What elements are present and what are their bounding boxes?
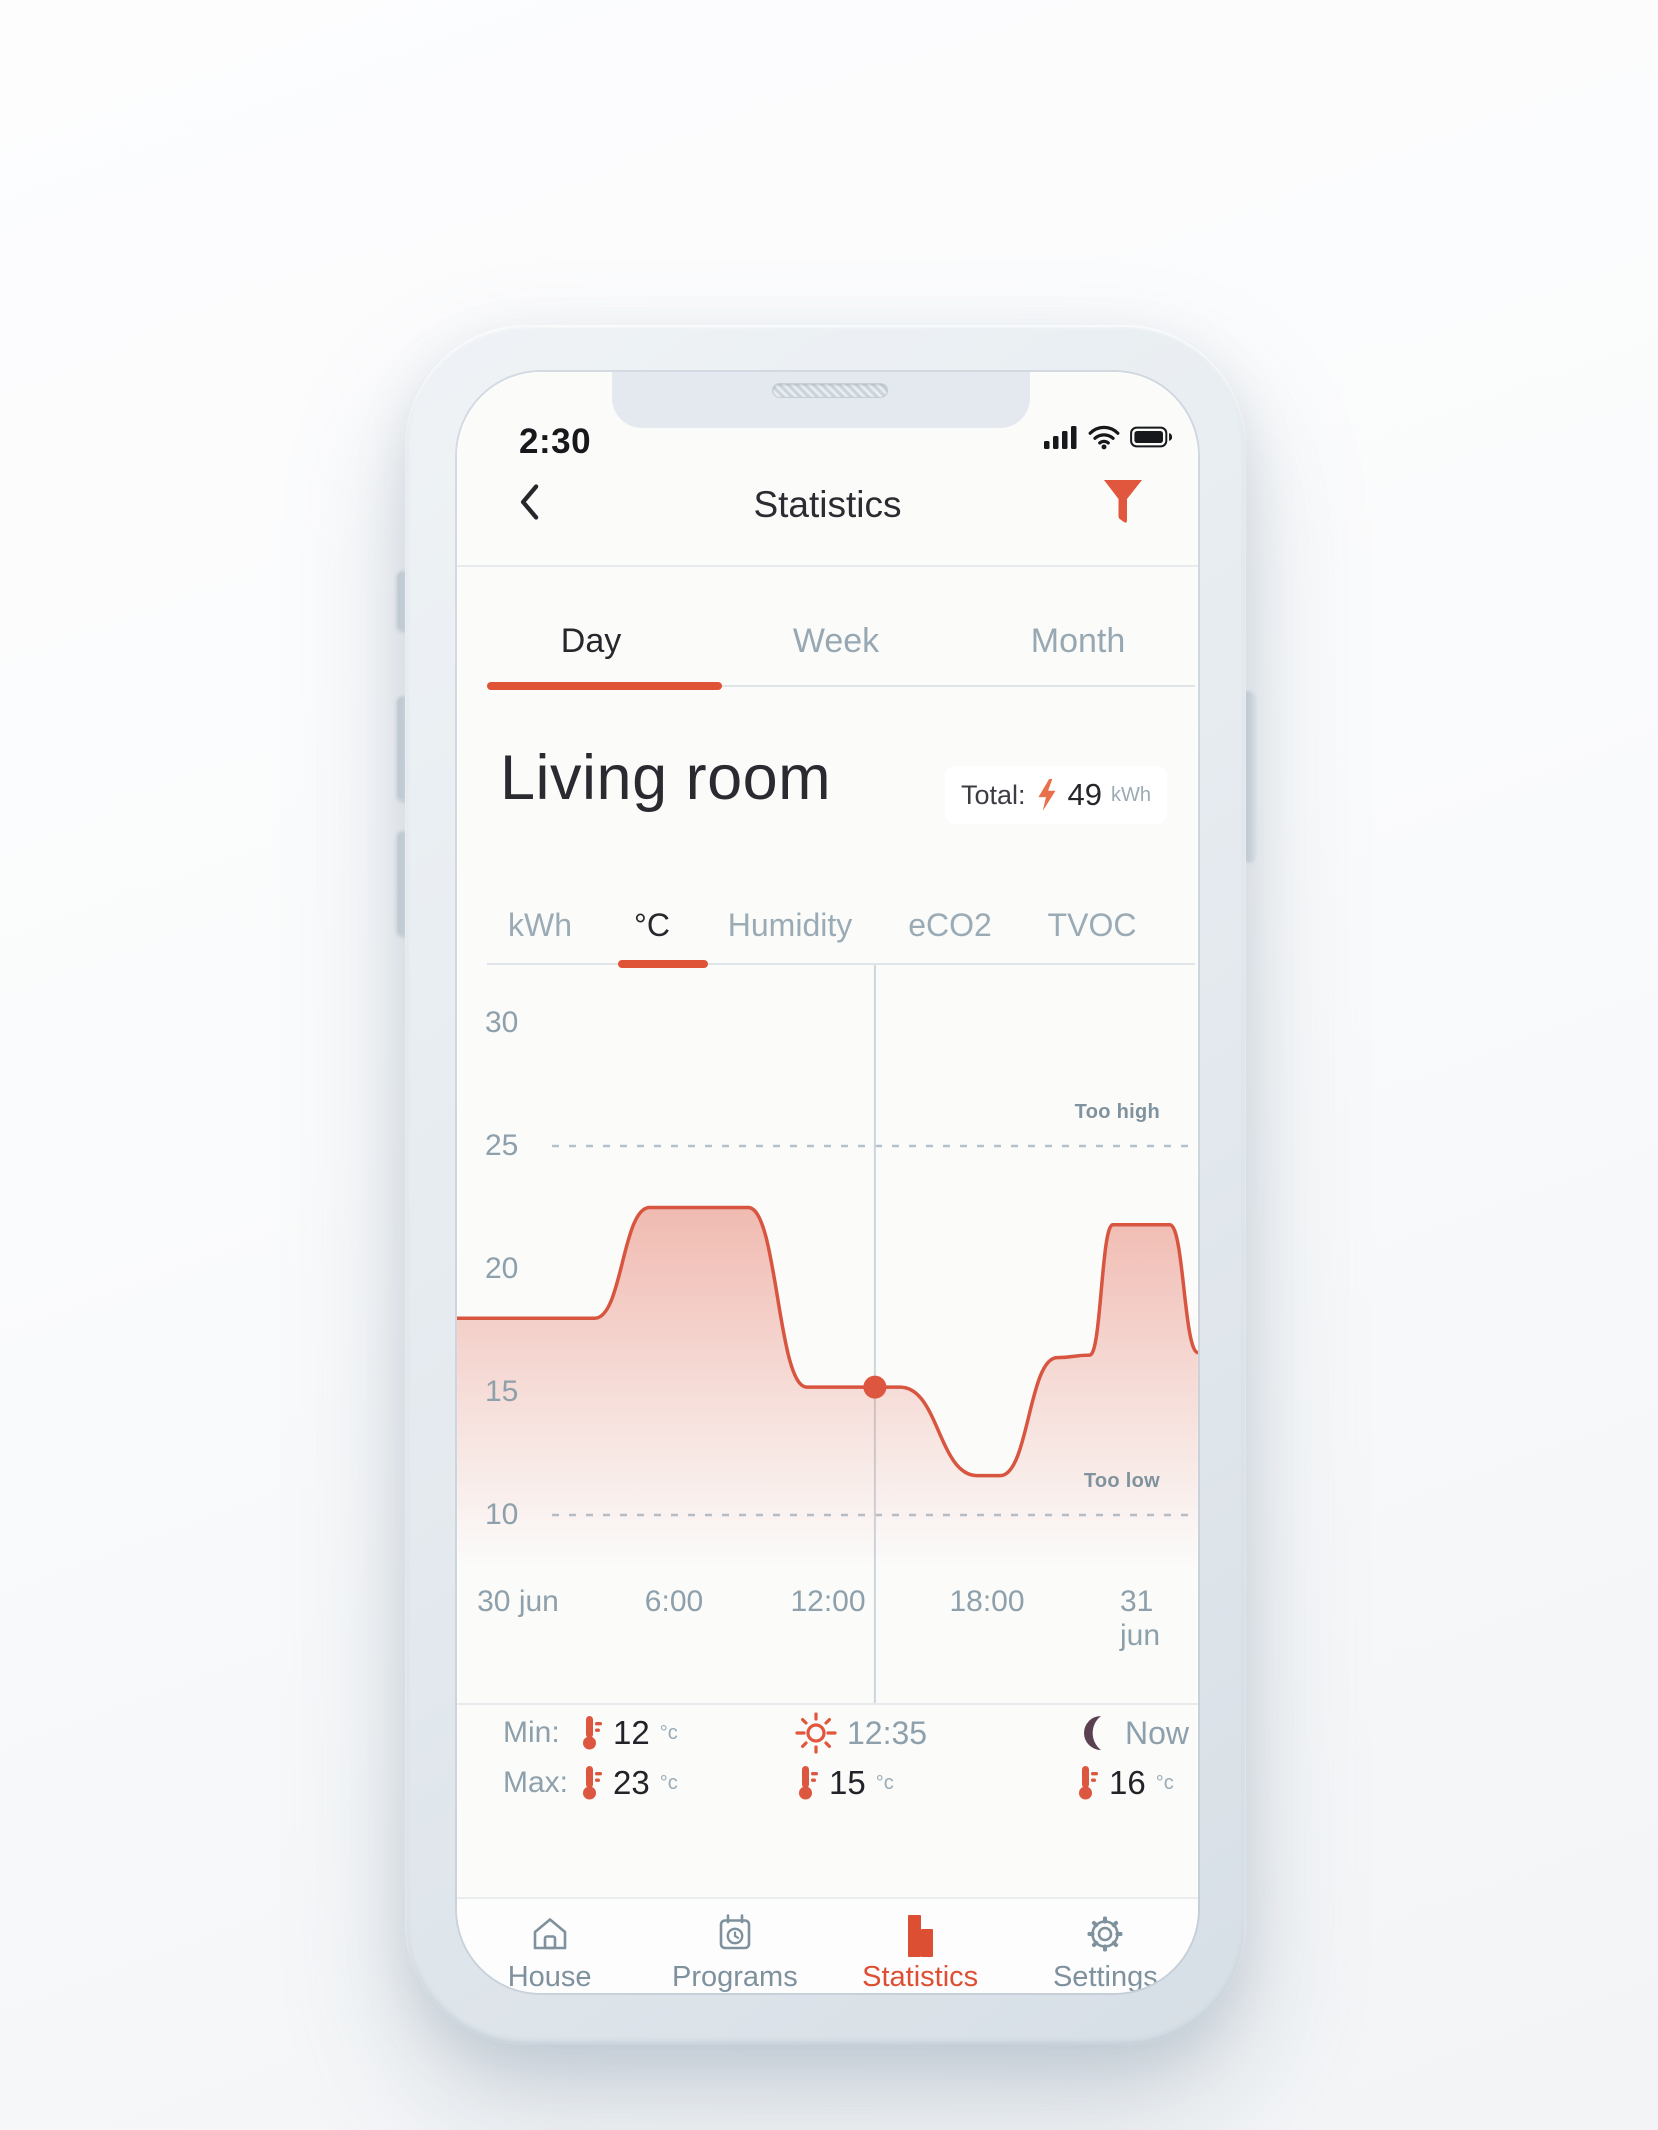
thermometer-icon (795, 1764, 819, 1802)
stat-max: Max: 23 °c (503, 1760, 678, 1806)
signal-strength-icon (1044, 424, 1078, 450)
thermometer-icon (579, 1714, 603, 1752)
tab-week[interactable]: Week (793, 622, 879, 661)
nav-programs[interactable]: Programs (642, 1899, 827, 1993)
app-screen: 2:30 (457, 372, 1198, 1993)
wifi-icon (1088, 424, 1120, 450)
y-tick-25: 25 (485, 1129, 518, 1163)
midday-time: 12:35 (847, 1715, 927, 1752)
x-tick-600: 6:00 (645, 1585, 703, 1619)
min-label: Min: (503, 1716, 569, 1750)
midday-value: 15 (829, 1764, 866, 1802)
tab-month[interactable]: Month (1031, 622, 1126, 661)
max-value: 23 (613, 1764, 650, 1802)
tab-eco2[interactable]: eCO2 (908, 907, 992, 944)
stat-now-temp: 16 °c (1075, 1760, 1174, 1806)
phone-mockup: 2:30 (405, 325, 1246, 2045)
tab-kwh[interactable]: kWh (508, 907, 572, 944)
sun-icon (795, 1712, 837, 1754)
nav-statistics-label: Statistics (862, 1961, 978, 1993)
moon-icon (1075, 1713, 1115, 1753)
x-tick-1800: 18:00 (949, 1585, 1024, 1619)
nav-settings-label: Settings (1053, 1961, 1158, 1993)
temperature-chart: 30 25 20 15 10 Too high Too low 30 jun 6… (457, 965, 1198, 1705)
stat-midday-time: 12:35 (795, 1710, 927, 1756)
now-marker-dot[interactable] (863, 1376, 886, 1399)
too-high-label: Too high (1075, 1101, 1160, 1124)
tab-celsius[interactable]: °C (634, 907, 670, 944)
total-unit: kWh (1111, 784, 1151, 807)
total-energy-chip: Total: 49 kWh (945, 766, 1167, 824)
nav-house[interactable]: House (457, 1899, 642, 1993)
lightning-bolt-icon (1035, 779, 1059, 811)
x-tick-1200: 12:00 (790, 1585, 865, 1619)
min-unit: °c (660, 1722, 678, 1745)
nav-programs-label: Programs (672, 1961, 798, 1993)
bottom-nav: House Programs (457, 1897, 1198, 1993)
now-label: Now (1125, 1715, 1189, 1752)
nav-house-label: House (508, 1961, 592, 1993)
y-tick-20: 20 (485, 1252, 518, 1286)
gear-icon (1082, 1911, 1128, 1957)
status-icons (1044, 424, 1174, 450)
home-icon (527, 1911, 573, 1957)
bar-chart-icon (897, 1911, 943, 1957)
too-low-label: Too low (1084, 1470, 1160, 1493)
thermometer-icon (1075, 1764, 1099, 1802)
tab-day[interactable]: Day (561, 622, 621, 661)
max-label: Max: (503, 1766, 569, 1800)
desktop-background: 2:30 (0, 0, 1658, 2130)
now-unit: °c (1156, 1772, 1174, 1795)
thermometer-icon (579, 1764, 603, 1802)
max-unit: °c (660, 1772, 678, 1795)
battery-icon (1130, 426, 1174, 448)
speaker-grille (772, 383, 888, 398)
x-tick-30jun: 30 jun (477, 1585, 559, 1619)
total-label: Total: (961, 780, 1026, 811)
room-title: Living room (500, 742, 831, 814)
stat-now-time: Now (1075, 1710, 1189, 1756)
temperature-area (457, 1208, 1198, 1706)
stat-midday-temp: 15 °c (795, 1760, 894, 1806)
y-tick-15: 15 (485, 1375, 518, 1409)
total-value: 49 (1068, 777, 1102, 813)
x-tick-31jun: 31 jun (1120, 1585, 1172, 1653)
filter-button[interactable] (1103, 479, 1145, 527)
calendar-clock-icon (712, 1911, 758, 1957)
tab-active-indicator (487, 682, 722, 690)
stats-divider (457, 1703, 1198, 1705)
stat-min: Min: 12 °c (503, 1710, 678, 1756)
page-title: Statistics (457, 484, 1198, 526)
tab-tvoc[interactable]: TVOC (1048, 907, 1137, 944)
midday-unit: °c (876, 1772, 894, 1795)
nav-settings[interactable]: Settings (1013, 1899, 1198, 1993)
nav-statistics[interactable]: Statistics (828, 1899, 1013, 1993)
header-divider (457, 565, 1198, 567)
y-tick-30: 30 (485, 1006, 518, 1040)
status-time: 2:30 (519, 422, 591, 462)
notch (612, 372, 1030, 428)
now-value: 16 (1109, 1764, 1146, 1802)
y-tick-10: 10 (485, 1498, 518, 1532)
min-value: 12 (613, 1714, 650, 1752)
tab-humidity[interactable]: Humidity (728, 907, 852, 944)
funnel-icon (1103, 479, 1145, 525)
